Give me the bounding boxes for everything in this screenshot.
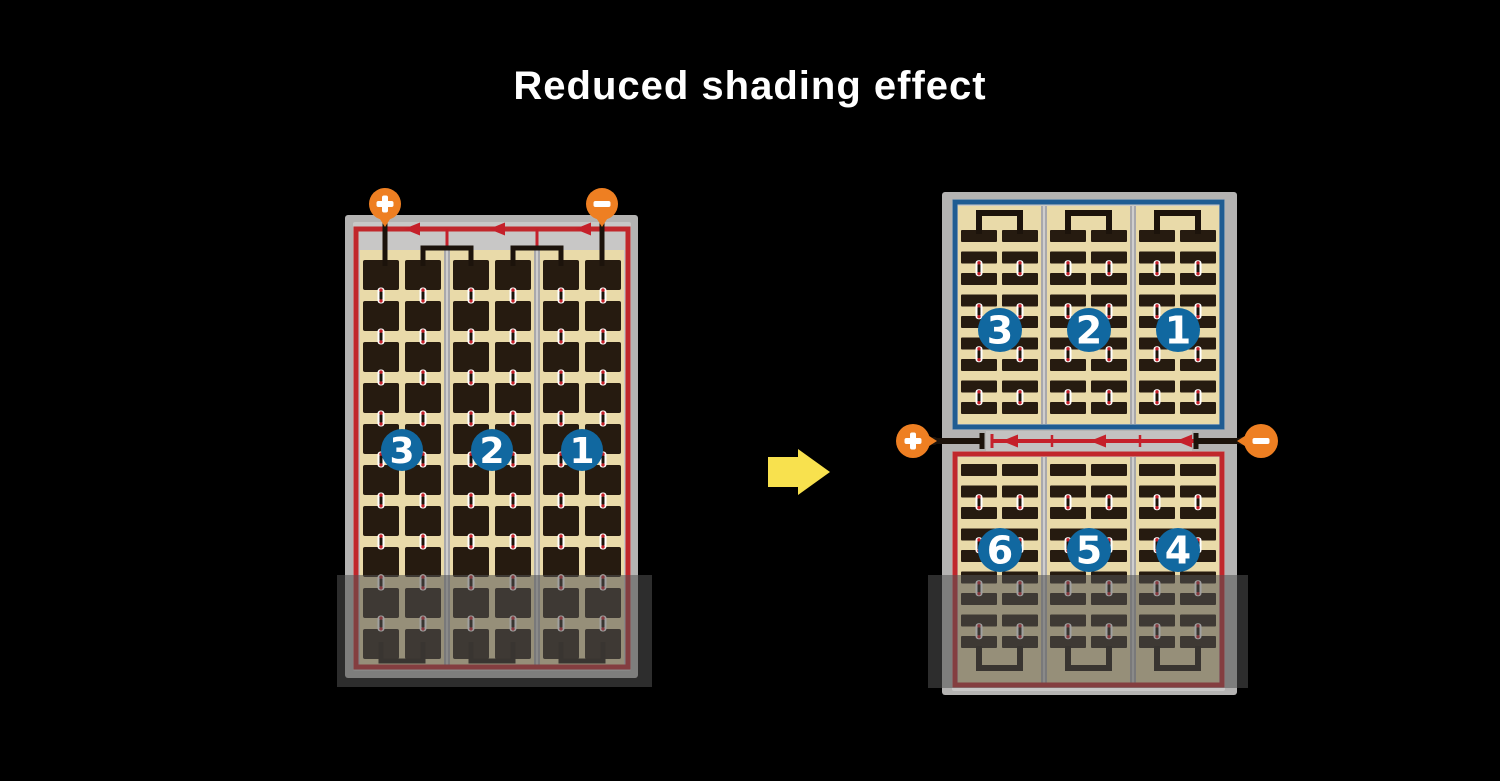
cell-connector: [510, 534, 517, 550]
cell-connector: [1106, 389, 1113, 405]
cell-connector: [976, 260, 983, 276]
cell-connector: [558, 329, 565, 345]
cell-connector: [558, 493, 565, 509]
cell-connector: [976, 303, 983, 319]
cell-connector: [558, 411, 565, 427]
cell-connector: [1017, 389, 1024, 405]
cell-connector: [600, 493, 607, 509]
cell-connector: [468, 411, 475, 427]
transition-arrow-icon: [768, 449, 830, 495]
cell-connector: [1065, 494, 1072, 510]
cell-connector: [420, 493, 427, 509]
cell-connector: [420, 329, 427, 345]
cell-connector: [600, 288, 607, 304]
cell-connector: [1154, 260, 1161, 276]
cell-connector: [378, 493, 385, 509]
before-module: 321: [337, 188, 652, 687]
cell-connector: [1065, 303, 1072, 319]
cell-connector: [468, 329, 475, 345]
cell-connector: [420, 411, 427, 427]
cell-connector: [378, 370, 385, 386]
cell-connector: [1017, 260, 1024, 276]
shading-overlay: [928, 575, 1248, 688]
cell-connector: [510, 411, 517, 427]
cell-connector: [1154, 346, 1161, 362]
cell-connector: [558, 370, 565, 386]
diagram-canvas: 321321654: [0, 0, 1500, 781]
string-badge-label: 2: [479, 431, 504, 472]
cell-connector: [420, 370, 427, 386]
cell-connector: [1154, 494, 1161, 510]
cell-connector: [1195, 260, 1202, 276]
cell-connector: [558, 288, 565, 304]
cell-connector: [600, 370, 607, 386]
cell-connector: [420, 288, 427, 304]
cell-connector: [1017, 346, 1024, 362]
cell-connector: [468, 370, 475, 386]
top-module: 321: [952, 199, 1225, 430]
cell-connector: [976, 494, 983, 510]
string-badge-label: 3: [987, 309, 1013, 353]
cell-connector: [1017, 494, 1024, 510]
cell-connector: [1106, 260, 1113, 276]
cell-connector: [468, 534, 475, 550]
string-badge-label: 5: [1076, 529, 1102, 573]
cell-connector: [1106, 494, 1113, 510]
cell-connector: [1195, 346, 1202, 362]
cell-connector: [378, 329, 385, 345]
minus-sign-icon: [594, 201, 611, 207]
cell-connector: [1065, 260, 1072, 276]
cell-connector: [468, 288, 475, 304]
after-modules: 321654: [896, 192, 1278, 695]
cell-connector: [1195, 494, 1202, 510]
string-badge-label: 1: [569, 431, 594, 472]
string-badge-label: 4: [1165, 529, 1191, 573]
string-badge-label: 3: [389, 431, 414, 472]
cell-connector: [600, 534, 607, 550]
cell-connector: [600, 329, 607, 345]
minus-terminal: [1237, 424, 1278, 458]
string-badge-label: 6: [987, 529, 1013, 573]
cell-connector: [558, 534, 565, 550]
cell-connector: [378, 411, 385, 427]
cell-connector: [510, 288, 517, 304]
minus-sign-icon: [1253, 438, 1270, 444]
cell-connector: [1065, 389, 1072, 405]
string-badge-label: 1: [1165, 309, 1191, 353]
cell-connector: [976, 346, 983, 362]
cell-connector: [468, 493, 475, 509]
plus-terminal: [896, 424, 937, 458]
cell-connector: [378, 534, 385, 550]
cell-connector: [378, 288, 385, 304]
cell-connector: [510, 329, 517, 345]
cell-connector: [1195, 389, 1202, 405]
cell-connector: [510, 493, 517, 509]
cell-connector: [510, 370, 517, 386]
cell-connector: [1106, 346, 1113, 362]
shading-effect-infographic: Reduced shading effect 321321654: [0, 0, 1500, 781]
cell-connector: [600, 411, 607, 427]
cell-connector: [1154, 389, 1161, 405]
cell-connector: [976, 389, 983, 405]
cell-connector: [1065, 346, 1072, 362]
shading-overlay: [337, 575, 652, 687]
string-badge-label: 2: [1076, 309, 1102, 353]
cell-connector: [1154, 303, 1161, 319]
cell-connector: [420, 534, 427, 550]
